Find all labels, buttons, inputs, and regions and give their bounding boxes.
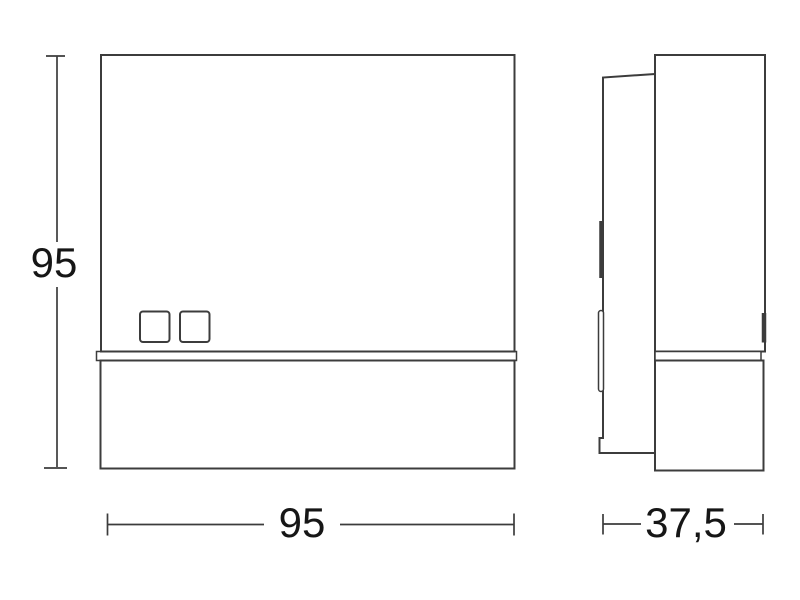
side-view — [599, 55, 766, 471]
dimension-drawing: 95 95 37,5 — [0, 0, 800, 600]
mounting-clip-lower — [599, 311, 604, 392]
sensor-window-right — [180, 312, 210, 343]
technical-drawing-canvas: 95 95 37,5 — [0, 0, 800, 600]
front-view — [97, 55, 517, 469]
width-dimension: 95 — [108, 499, 515, 546]
sensor-window-left — [140, 312, 170, 343]
side-sensor-strip — [655, 352, 761, 361]
side-upper-housing — [655, 55, 765, 352]
height-dimension-label: 95 — [31, 239, 78, 286]
side-lower-housing — [655, 361, 764, 471]
front-upper-housing — [101, 55, 515, 352]
depth-dimension-label: 37,5 — [645, 499, 727, 546]
front-sensor-strip — [97, 352, 517, 361]
front-lower-housing — [101, 361, 515, 469]
height-dimension: 95 — [31, 56, 78, 468]
side-back-plate — [600, 74, 656, 453]
depth-dimension: 37,5 — [603, 499, 763, 546]
width-dimension-label: 95 — [279, 499, 326, 546]
